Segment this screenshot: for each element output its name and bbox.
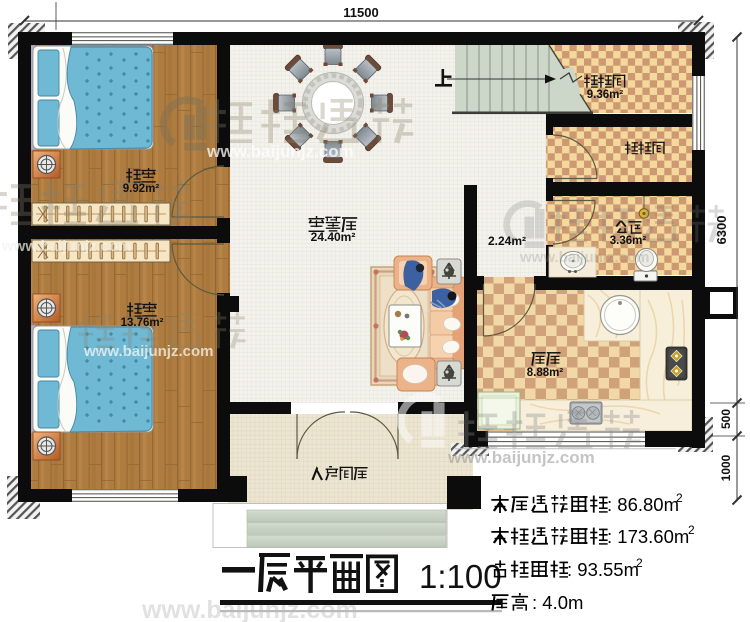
svg-text:www.baijunjz.com: www.baijunjz.com — [83, 343, 213, 360]
svg-text:www.baijunjz.com: www.baijunjz.com — [1, 238, 131, 255]
svg-text:2: 2 — [676, 491, 683, 505]
svg-text:: 4.0m: : 4.0m — [532, 592, 583, 613]
svg-text:500: 500 — [719, 409, 733, 429]
svg-text:9.36m²: 9.36m² — [587, 89, 624, 101]
svg-text:8.88m²: 8.88m² — [527, 367, 564, 379]
svg-text:: 93.55m: : 93.55m — [567, 559, 639, 580]
svg-text:2: 2 — [636, 556, 643, 570]
svg-text:13.76m²: 13.76m² — [121, 317, 164, 329]
svg-text:: 86.80m: : 86.80m — [607, 494, 679, 515]
svg-text:24.40m²: 24.40m² — [311, 230, 356, 244]
svg-text:11500: 11500 — [343, 5, 378, 20]
svg-text:www.baijunjz.com: www.baijunjz.com — [447, 448, 595, 467]
svg-text:1:100: 1:100 — [419, 558, 502, 595]
svg-text:www.baijunjz.com: www.baijunjz.com — [206, 142, 354, 161]
svg-text:2: 2 — [688, 523, 695, 537]
svg-text:www.baijunjz.com: www.baijunjz.com — [519, 249, 649, 266]
svg-text:1000: 1000 — [719, 454, 733, 481]
svg-text:2.24m²: 2.24m² — [488, 234, 526, 248]
svg-text:: 173.60m: : 173.60m — [607, 526, 689, 547]
svg-text:3.36m²: 3.36m² — [610, 235, 647, 247]
svg-text:9.92m²: 9.92m² — [123, 183, 160, 195]
svg-text:www.baijunjz.com: www.baijunjz.com — [141, 596, 358, 622]
svg-text:6300: 6300 — [714, 216, 729, 245]
